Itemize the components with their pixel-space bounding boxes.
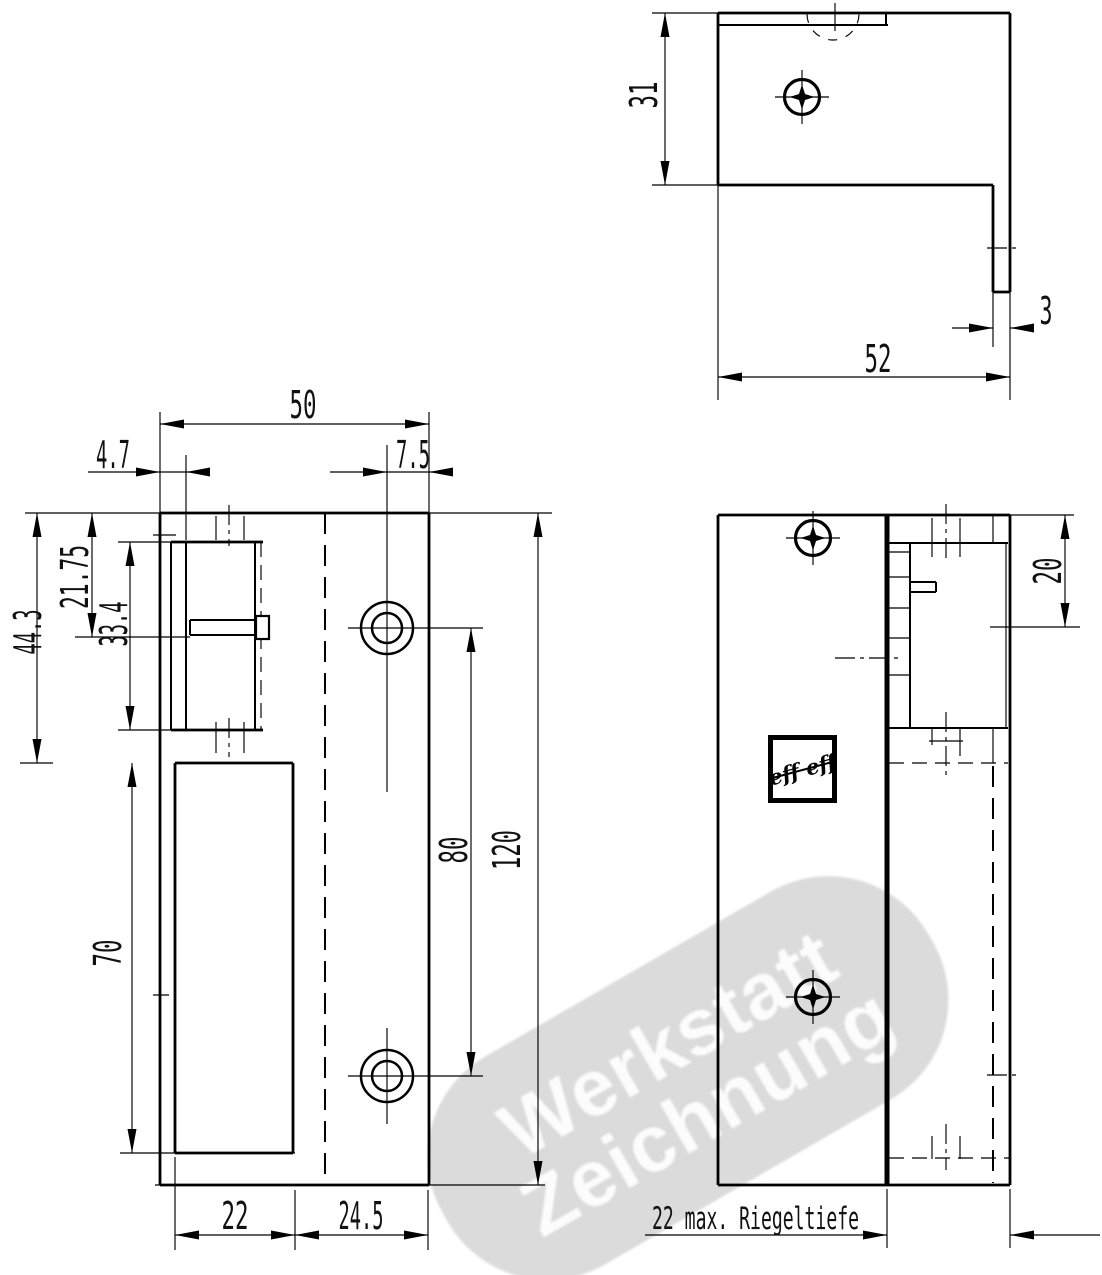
front-view: 50 4.7 7.5 21.75: [6, 383, 552, 1250]
svg-text:7.5: 7.5: [396, 433, 430, 477]
dim-front-case: 70: [86, 763, 137, 1153]
svg-text:80: 80: [432, 837, 476, 864]
svg-text:52: 52: [865, 337, 892, 381]
svg-text:20: 20: [1026, 558, 1070, 585]
svg-text:22 max. Riegeltiefe: 22 max. Riegeltiefe: [652, 1201, 859, 1237]
dim-front-height: 120: [485, 513, 543, 1185]
hidden-hole-arc: [807, 14, 859, 40]
mount-hole-lower: [348, 1028, 483, 1124]
top-view: 31 3 52: [622, 3, 1053, 400]
svg-text:33.4: 33.4: [92, 602, 136, 647]
svg-text:70: 70: [86, 940, 130, 967]
dim-front-keeper-bottom: 44.3: [6, 513, 53, 763]
effeff-logo-text: eff eff: [766, 748, 839, 790]
lock-case-front: [120, 763, 295, 1153]
drawing-canvas: Werkstatt Zeichnung eff eff: [0, 0, 1102, 1275]
dim-side-keeper-top: 20: [990, 515, 1080, 627]
svg-text:24.5: 24.5: [339, 1194, 384, 1238]
svg-text:4.7: 4.7: [96, 433, 130, 477]
dim-side-bolt-depth: 22 max. Riegeltiefe: [645, 1189, 1100, 1248]
dim-front-case-width: 22 24.5: [175, 1157, 428, 1250]
dim-front-hole-edge: 7.5: [330, 433, 453, 477]
svg-text:44.3: 44.3: [6, 610, 50, 655]
screw-icon-lower: [786, 970, 840, 1024]
svg-text:3: 3: [1040, 289, 1053, 333]
keeper-side: [889, 504, 1018, 1183]
effeff-logo: eff eff: [768, 735, 837, 803]
screw-icon: [775, 70, 829, 124]
svg-text:120: 120: [485, 830, 529, 870]
technical-drawing: 31 3 52: [0, 0, 1102, 1275]
dim-front-lip: 4.7: [88, 433, 210, 540]
svg-text:50: 50: [290, 383, 317, 427]
keeper-front: [171, 505, 269, 757]
dim-front-width: 50: [160, 383, 429, 513]
dim-top-width: 52: [718, 337, 1010, 382]
svg-text:21.75: 21.75: [53, 545, 97, 609]
dim-top-depth: 31: [622, 13, 670, 185]
svg-text:31: 31: [622, 82, 666, 109]
svg-text:22: 22: [222, 1194, 249, 1238]
screw-icon-upper: [786, 511, 840, 565]
dim-front-hole-spacing: 80: [432, 628, 476, 1076]
side-view: 20 22 max. Riegeltiefe: [645, 504, 1100, 1248]
mount-hole-upper: [348, 445, 483, 792]
